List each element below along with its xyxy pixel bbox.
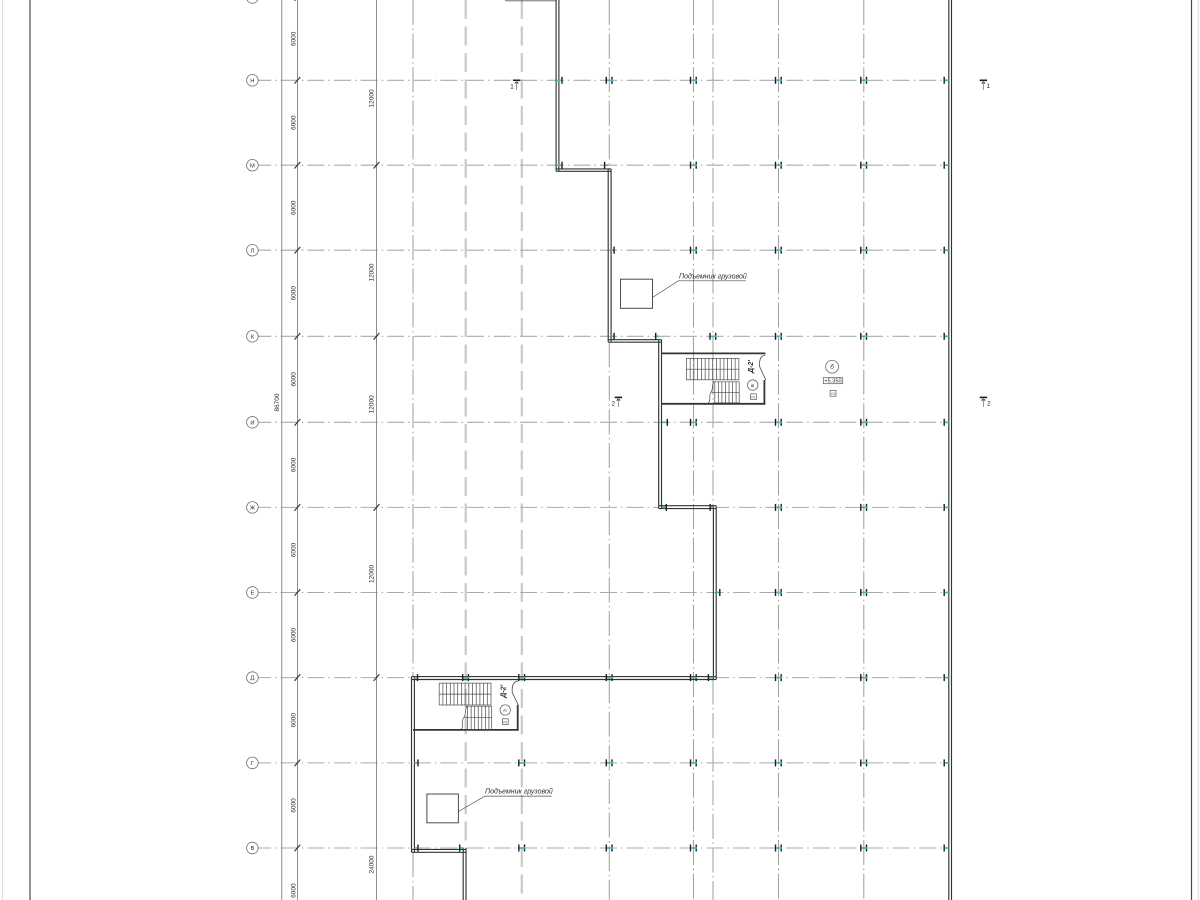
svg-text:6000: 6000	[291, 713, 298, 728]
svg-text:И: И	[250, 420, 254, 426]
svg-text:6000: 6000	[291, 372, 298, 387]
svg-text:Д-2': Д-2'	[748, 360, 755, 374]
svg-text:6000: 6000	[291, 542, 298, 557]
svg-text:К: К	[251, 334, 255, 340]
svg-text:6000: 6000	[291, 457, 298, 472]
svg-text:2: 2	[830, 392, 836, 395]
svg-text:В: В	[250, 846, 254, 852]
svg-text:М: М	[250, 163, 255, 169]
svg-text:2: 2	[503, 720, 509, 723]
svg-text:12000: 12000	[369, 89, 376, 107]
svg-text:в: в	[750, 384, 756, 387]
svg-text:12000: 12000	[369, 564, 376, 582]
svg-text:Л: Л	[250, 248, 254, 254]
svg-text:б: б	[830, 363, 834, 371]
svg-text:Подъемник грузовой: Подъемник грузовой	[485, 788, 553, 796]
svg-text:Д-2': Д-2'	[500, 684, 507, 698]
svg-text:Ж: Ж	[250, 506, 256, 512]
svg-text:Н: Н	[250, 78, 254, 84]
svg-text:6000: 6000	[291, 286, 298, 301]
svg-text:2: 2	[751, 396, 757, 399]
svg-text:Подъемник грузовой: Подъемник грузовой	[679, 272, 747, 280]
svg-text:2: 2	[987, 400, 991, 407]
svg-text:6000: 6000	[291, 627, 298, 642]
svg-text:6000: 6000	[291, 883, 298, 898]
svg-text:Е: Е	[250, 591, 254, 597]
svg-text:6000: 6000	[291, 31, 298, 46]
svg-text:э: э	[503, 709, 509, 712]
svg-text:1: 1	[510, 83, 514, 90]
svg-text:12000: 12000	[369, 263, 376, 281]
svg-text:+5.350: +5.350	[824, 379, 841, 385]
svg-text:2: 2	[611, 400, 615, 407]
svg-text:86700: 86700	[274, 393, 281, 411]
svg-text:6000: 6000	[291, 200, 298, 215]
svg-text:6000: 6000	[291, 798, 298, 813]
svg-text:1: 1	[986, 83, 990, 90]
svg-text:6000: 6000	[291, 115, 298, 130]
svg-text:Д: Д	[250, 676, 254, 682]
svg-text:24000: 24000	[368, 855, 375, 873]
svg-text:12000: 12000	[369, 395, 376, 413]
